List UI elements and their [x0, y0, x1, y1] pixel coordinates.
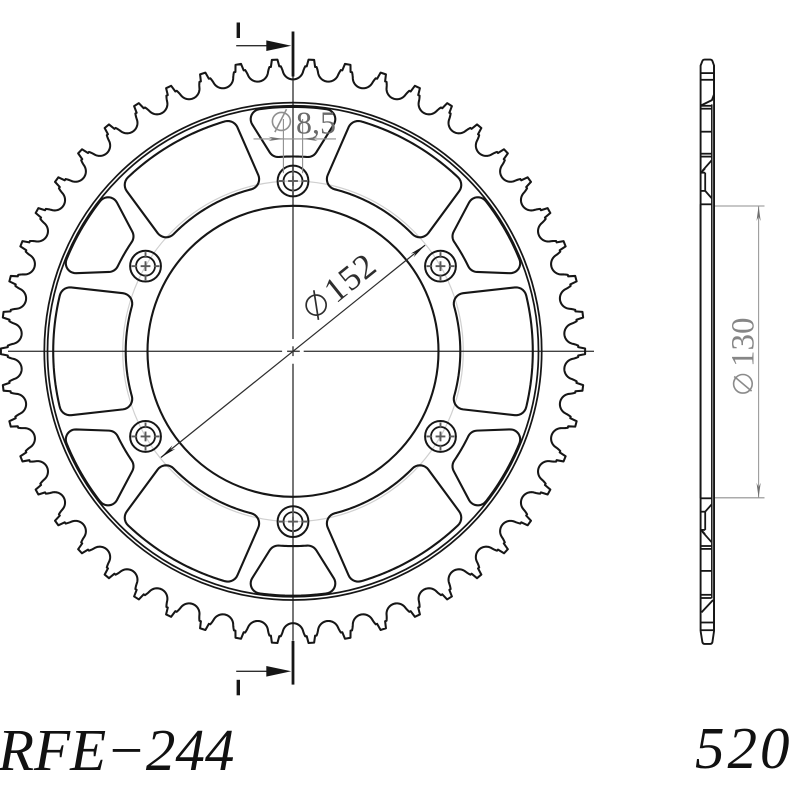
svg-text:RFE−244: RFE−244 [0, 717, 234, 783]
svg-text:8,5: 8,5 [296, 105, 336, 141]
svg-text:130: 130 [726, 318, 762, 368]
svg-text:520: 520 [695, 715, 793, 781]
